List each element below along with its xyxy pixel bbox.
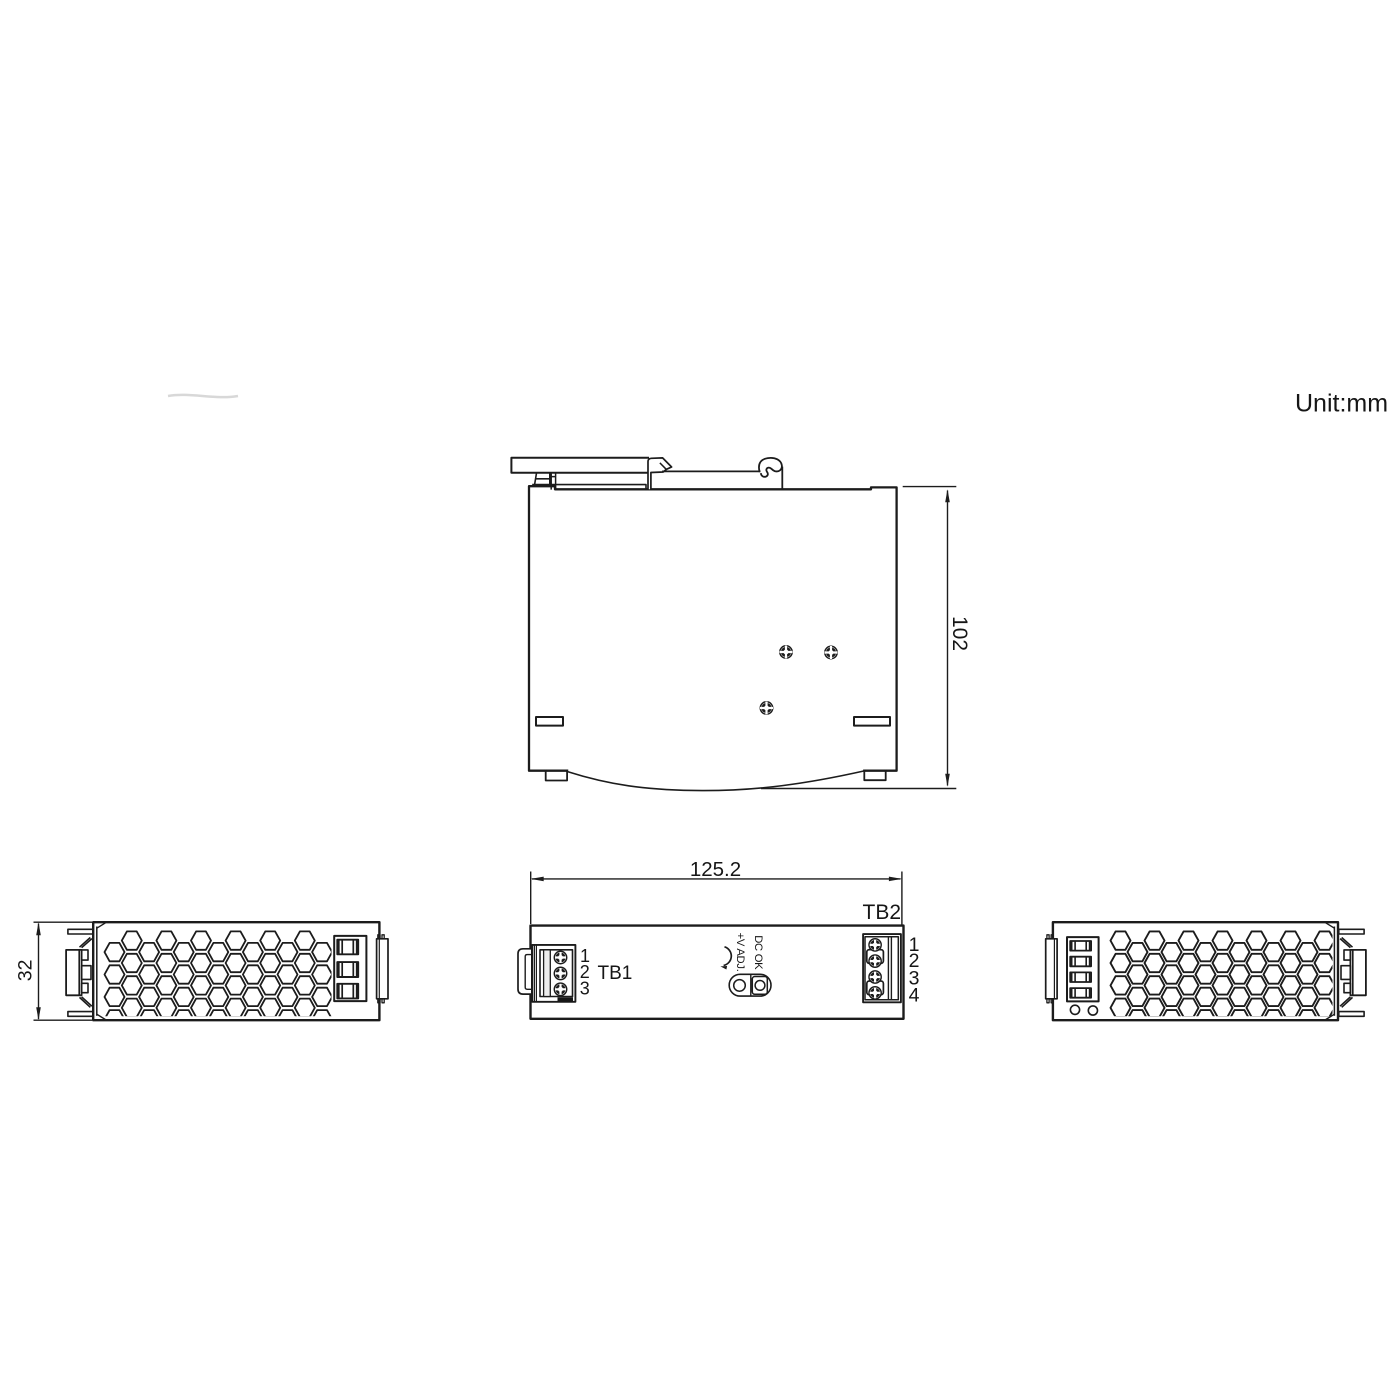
svg-text:125.2: 125.2 <box>690 858 741 881</box>
svg-text:TB2: TB2 <box>863 901 902 924</box>
svg-text:102: 102 <box>948 616 971 651</box>
svg-text:3: 3 <box>580 979 590 999</box>
svg-text:4: 4 <box>909 985 920 1007</box>
svg-text:DC OK: DC OK <box>752 935 764 970</box>
svg-text:+V ADJ.: +V ADJ. <box>734 933 746 972</box>
svg-text:TB1: TB1 <box>598 963 633 984</box>
svg-text:32: 32 <box>14 960 36 982</box>
svg-text:Unit:mm: Unit:mm <box>1295 390 1388 418</box>
